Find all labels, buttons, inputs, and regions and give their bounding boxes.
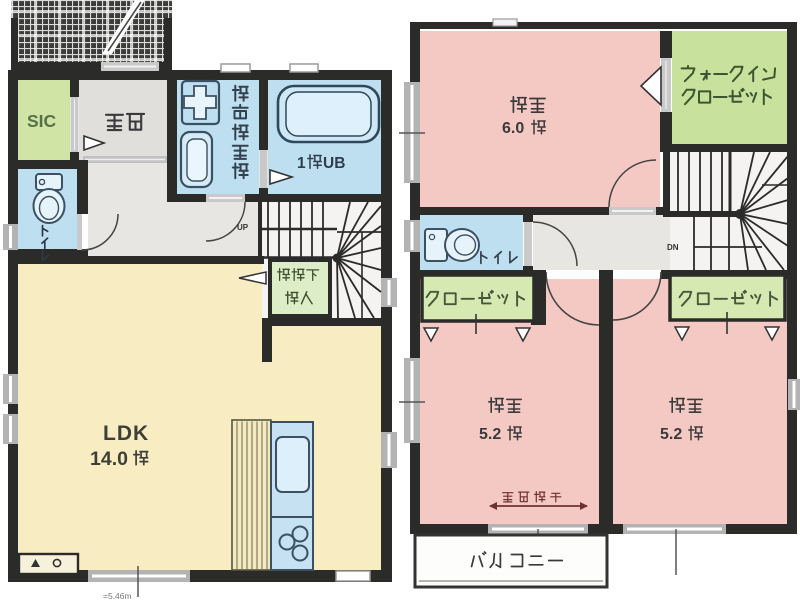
svg-text:DN: DN [667,243,679,252]
svg-text:5.2: 5.2 [479,426,501,443]
svg-text:5.2: 5.2 [660,426,682,443]
svg-text:1: 1 [297,155,306,172]
svg-text:SIC: SIC [27,111,57,131]
svg-text:LDK: LDK [103,422,149,445]
svg-text:UP: UP [237,223,249,232]
svg-text:14.0: 14.0 [90,448,128,470]
svg-text:=5.46m: =5.46m [103,591,132,601]
svg-text:6.0: 6.0 [502,120,524,137]
svg-text:UB: UB [323,155,345,172]
